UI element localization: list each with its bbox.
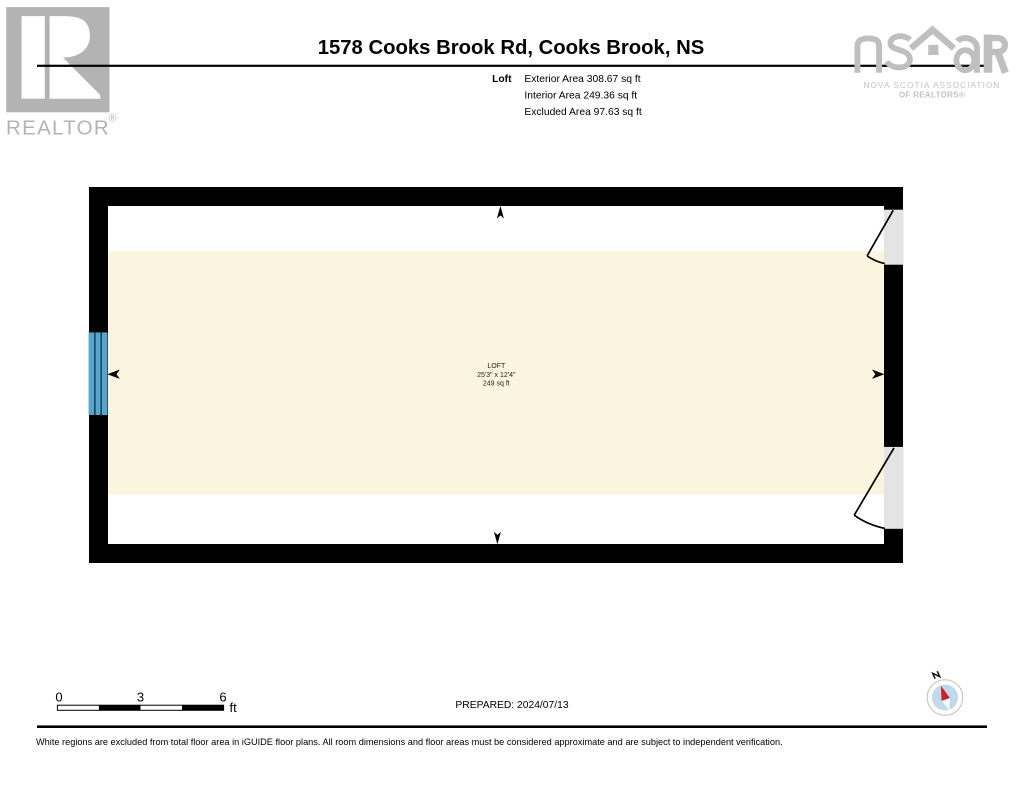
svg-text:White regions are excluded fro: White regions are excluded from total fl… <box>36 737 783 747</box>
svg-text:1578 Cooks Brook Rd, Cooks Bro: 1578 Cooks Brook Rd, Cooks Brook, NS <box>318 37 705 59</box>
svg-text:Exterior Area 308.67 sq ft: Exterior Area 308.67 sq ft <box>524 74 640 85</box>
svg-text:Excluded Area 97.63 sq ft: Excluded Area 97.63 sq ft <box>524 107 641 118</box>
svg-text:Loft: Loft <box>492 74 512 85</box>
svg-text:3: 3 <box>137 689 144 704</box>
svg-text:6: 6 <box>219 689 226 704</box>
svg-text:NOVA SCOTIA ASSOCIATION: NOVA SCOTIA ASSOCIATION <box>864 81 1001 90</box>
svg-text:25'3" x 12'4": 25'3" x 12'4" <box>477 372 516 379</box>
svg-text:REALTOR: REALTOR <box>6 117 110 140</box>
svg-text:LOFT: LOFT <box>487 363 506 370</box>
svg-text:®: ® <box>109 113 117 125</box>
svg-text:PREPARED: 2024/07/13: PREPARED: 2024/07/13 <box>455 700 568 711</box>
svg-text:Interior Area 249.36 sq ft: Interior Area 249.36 sq ft <box>524 91 637 102</box>
svg-text:0: 0 <box>55 689 62 704</box>
svg-text:ft: ft <box>230 700 238 715</box>
svg-text:249 sq ft: 249 sq ft <box>483 380 510 387</box>
svg-text:OF REALTORS®: OF REALTORS® <box>899 91 965 100</box>
